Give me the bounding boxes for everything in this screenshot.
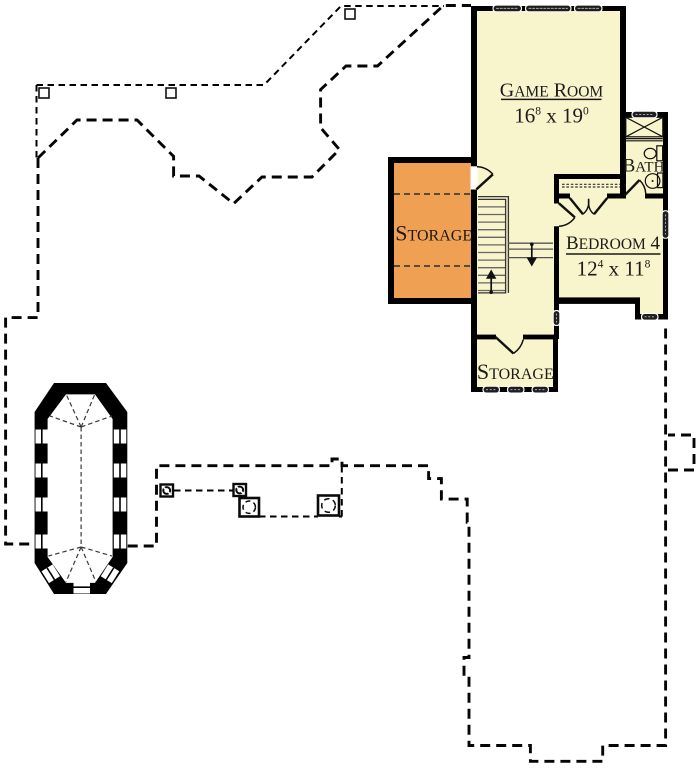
- svg-text:BEDROOM 4: BEDROOM 4: [566, 233, 661, 254]
- svg-text:GAME ROOM: GAME ROOM: [500, 79, 604, 101]
- svg-text:168 x 190: 168 x 190: [514, 104, 589, 128]
- svg-text:BATH: BATH: [623, 156, 665, 177]
- svg-text:124 x 118: 124 x 118: [577, 256, 651, 280]
